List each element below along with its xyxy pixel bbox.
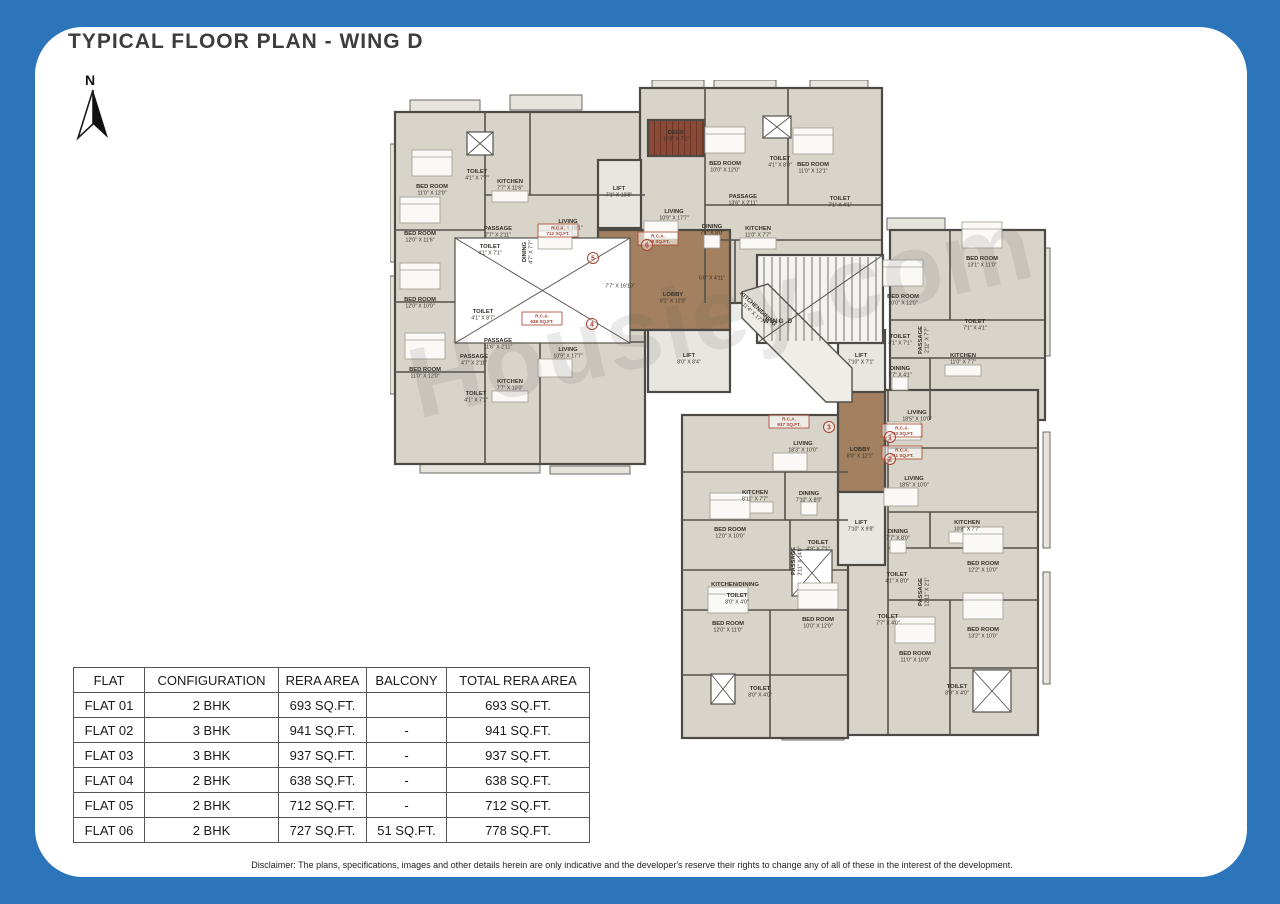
room-label: BED ROOM12'0" X 11'6" [404, 231, 436, 243]
svg-text:4'7" X 2'11": 4'7" X 2'11" [461, 360, 487, 366]
table-row: FLAT 023 BHK941 SQ.FT.-941 SQ.FT. [74, 718, 590, 743]
svg-text:BED ROOM: BED ROOM [966, 256, 998, 262]
room-label: BED ROOM13'1" X 11'0" [966, 256, 998, 268]
svg-text:7'7" X 16'10": 7'7" X 16'10" [605, 283, 634, 289]
room-label: DINING4'7" X 7'7" [522, 240, 534, 264]
svg-text:7'7" X 10'0": 7'7" X 10'0" [497, 385, 524, 391]
table-cell: 638 SQ.FT. [279, 768, 367, 793]
room-label: BED ROOM11'0" X 12'1" [797, 162, 829, 174]
svg-text:TOILET: TOILET [750, 686, 771, 692]
table-header-cell: FLAT [74, 668, 145, 693]
table-cell: 937 SQ.FT. [447, 743, 590, 768]
table-cell: 3 BHK [145, 718, 279, 743]
room-label: PASSAGE13'6" X 2'11" [729, 194, 758, 206]
room-label: TOILET7'7" X 4'0" [876, 614, 900, 626]
svg-text:BED ROOM: BED ROOM [714, 527, 746, 533]
svg-text:R.C.A.: R.C.A. [895, 448, 909, 453]
svg-text:TOILET: TOILET [770, 156, 791, 162]
svg-text:DINING: DINING [890, 366, 911, 372]
svg-text:3: 3 [827, 424, 831, 431]
svg-text:DINING: DINING [522, 241, 528, 262]
svg-text:18'5" X 10'0": 18'5" X 10'0" [902, 416, 931, 422]
table-cell: 693 SQ.FT. [279, 693, 367, 718]
table-cell: 2 BHK [145, 693, 279, 718]
svg-text:TOILET: TOILET [890, 334, 911, 340]
svg-text:LIFT: LIFT [855, 353, 868, 359]
room-label: DINING7'7" X 8'0" [886, 529, 910, 541]
room-label: KITCHEN11'0" X 7'7" [745, 226, 771, 238]
svg-text:4'1" X 7'1": 4'1" X 7'1" [888, 340, 912, 346]
svg-text:DECK: DECK [668, 130, 685, 136]
svg-text:TOILET: TOILET [878, 614, 899, 620]
table-cell: 3 BHK [145, 743, 279, 768]
svg-text:LIVING: LIVING [904, 476, 924, 482]
table-cell: FLAT 04 [74, 768, 145, 793]
svg-text:BED ROOM: BED ROOM [967, 561, 999, 567]
svg-text:TOILET: TOILET [467, 169, 488, 175]
room-label: PASSAGE4'7" X 2'11" [460, 354, 488, 366]
room-label: PASSAGE12'11" X 2'1" [918, 577, 930, 606]
svg-text:11'0" X 7'7": 11'0" X 7'7" [950, 359, 976, 365]
svg-text:4'1" X 8'7": 4'1" X 8'7" [471, 315, 495, 321]
room-label: BED ROOM12'2" X 10'0" [967, 561, 999, 573]
svg-text:18'3" X 10'0": 18'3" X 10'0" [788, 447, 817, 453]
svg-text:18'5" X 10'0": 18'5" X 10'0" [899, 482, 928, 488]
svg-text:TOILET: TOILET [466, 391, 487, 397]
svg-text:712 SQ.FT.: 712 SQ.FT. [546, 231, 569, 236]
svg-text:7'1" X 8'0": 7'1" X 8'0" [700, 230, 724, 236]
svg-text:LOBBY: LOBBY [850, 447, 870, 453]
svg-text:7'7" X 2'11": 7'7" X 2'11" [485, 232, 511, 238]
table-cell: 937 SQ.FT. [279, 743, 367, 768]
room-label: TOILET7'1" X 4'1" [828, 196, 852, 208]
svg-text:5: 5 [591, 255, 595, 262]
svg-text:LIVING: LIVING [664, 209, 684, 215]
table-cell: 2 BHK [145, 818, 279, 843]
disclaimer-text: Disclaimer: The plans, specifications, i… [246, 860, 1018, 870]
svg-text:10'8" X 7'1": 10'8" X 7'1" [663, 136, 690, 142]
room-label: TOILET8'0" X 4'0" [725, 593, 749, 605]
svg-text:11'0" X 12'0": 11'0" X 12'0" [418, 190, 447, 196]
table-cell: - [367, 743, 447, 768]
svg-text:7'7" X 4'1": 7'7" X 4'1" [888, 372, 912, 378]
svg-text:12'11" X 2'1": 12'11" X 2'1" [924, 577, 930, 606]
svg-text:TOILET: TOILET [830, 196, 851, 202]
svg-text:BED ROOM: BED ROOM [797, 162, 829, 168]
room-label: BED ROOM11'0" X 12'0" [409, 367, 441, 379]
svg-text:4'1" X 7'1": 4'1" X 7'1" [464, 397, 488, 403]
table-cell: FLAT 02 [74, 718, 145, 743]
svg-text:11'6" X 2'11": 11'6" X 2'11" [484, 344, 513, 350]
svg-text:TOILET: TOILET [473, 309, 494, 315]
svg-text:BED ROOM: BED ROOM [887, 294, 919, 300]
table-cell: 941 SQ.FT. [279, 718, 367, 743]
svg-text:BED ROOM: BED ROOM [899, 651, 931, 657]
room-label: BED ROOM11'0" X 10'0" [899, 651, 931, 663]
room-label: PASSAGE11'6" X 2'11" [484, 338, 513, 350]
svg-text:4'1" X 8'0": 4'1" X 8'0" [885, 578, 909, 584]
table-cell: - [367, 793, 447, 818]
svg-text:PASSAGE: PASSAGE [918, 326, 924, 354]
svg-text:PASSAGE: PASSAGE [484, 226, 512, 232]
table-cell: FLAT 05 [74, 793, 145, 818]
svg-text:PASSAGE: PASSAGE [729, 194, 757, 200]
table-cell: FLAT 06 [74, 818, 145, 843]
table-header-cell: TOTAL RERA AREA [447, 668, 590, 693]
svg-text:7'7" X 11'6": 7'7" X 11'6" [497, 185, 523, 191]
room-label: TOILET4'1" X 8'7" [471, 309, 495, 321]
room-label: BED ROOM10'0" X 12'0" [709, 161, 741, 173]
svg-text:KITCHEN: KITCHEN [950, 353, 976, 359]
table-header-cell: BALCONY [367, 668, 447, 693]
room-label: KITCHEN/DINING [711, 582, 759, 588]
svg-text:LOBBY: LOBBY [663, 292, 683, 298]
table-row: FLAT 052 BHK712 SQ.FT.-712 SQ.FT. [74, 793, 590, 818]
svg-text:R.C.A.: R.C.A. [535, 314, 549, 319]
svg-text:DINING: DINING [799, 491, 820, 497]
svg-text:R.C.A.: R.C.A. [651, 234, 665, 239]
svg-text:13'2" X 10'0": 13'2" X 10'0" [968, 633, 997, 639]
svg-text:TOILET: TOILET [480, 244, 501, 250]
room-label: TOILET4'1" X 7'1" [464, 391, 488, 403]
table-cell: 727 SQ.FT. [279, 818, 367, 843]
table-cell: - [367, 768, 447, 793]
room-label: BED ROOM10'0" X 12'0" [887, 294, 919, 306]
svg-text:KITCHEN/DINING: KITCHEN/DINING [711, 582, 759, 588]
svg-text:4'1" X 8'0": 4'1" X 8'0" [768, 162, 792, 168]
svg-text:BED ROOM: BED ROOM [404, 231, 436, 237]
svg-text:8'11" X 7'7": 8'11" X 7'7" [742, 496, 768, 502]
room-label: PASSAGE7'7" X 2'11" [484, 226, 512, 238]
svg-text:7'10" X 9'8": 7'10" X 9'8" [848, 526, 875, 532]
room-label: BED ROOM11'0" X 12'0" [416, 184, 448, 196]
svg-text:PASSAGE: PASSAGE [918, 578, 924, 606]
svg-text:LIFT: LIFT [613, 186, 626, 192]
table-row: FLAT 062 BHK727 SQ.FT.51 SQ.FT.778 SQ.FT… [74, 818, 590, 843]
page-title: TYPICAL FLOOR PLAN - WING D [68, 30, 424, 54]
svg-text:7'1" X 4'1": 7'1" X 4'1" [963, 325, 987, 331]
svg-text:KITCHEN: KITCHEN [954, 520, 980, 526]
table-row: FLAT 012 BHK693 SQ.FT.693 SQ.FT. [74, 693, 590, 718]
svg-text:KITCHEN: KITCHEN [497, 379, 523, 385]
svg-text:11'0" X 12'1": 11'0" X 12'1" [799, 168, 828, 174]
svg-text:10'9" X 17'7": 10'9" X 17'7" [659, 215, 688, 221]
room-label: KITCHEN8'11" X 7'7" [742, 490, 768, 502]
svg-text:BED ROOM: BED ROOM [712, 621, 744, 627]
floor-plan-drawing: BED ROOM11'0" X 12'0"TOILET4'1" X 7'7"KI… [390, 80, 1055, 745]
svg-text:PASSAGE: PASSAGE [460, 354, 488, 360]
svg-text:13'6" X 2'11": 13'6" X 2'11" [729, 200, 758, 206]
svg-text:TOILET: TOILET [965, 319, 986, 325]
svg-text:12'0" X 11'0": 12'0" X 11'0" [714, 627, 743, 633]
table-header-cell: CONFIGURATION [145, 668, 279, 693]
svg-text:DINING: DINING [702, 224, 723, 230]
svg-text:13'1" X 11'0": 13'1" X 11'0" [968, 262, 997, 268]
table-header-cell: RERA AREA [279, 668, 367, 693]
north-arrow: N [70, 72, 120, 144]
table-cell: 2 BHK [145, 793, 279, 818]
svg-text:10'0" X 12'0": 10'0" X 12'0" [888, 300, 917, 306]
room-label: LOBBY8'0" X 12'1" [847, 447, 874, 459]
svg-text:12'0" X 10'0": 12'0" X 10'0" [715, 533, 744, 539]
room-label: BED ROOM13'2" X 10'0" [967, 627, 999, 639]
svg-text:10'0" X 12'0": 10'0" X 12'0" [710, 167, 739, 173]
svg-text:DINING: DINING [888, 529, 909, 535]
svg-text:12'2" X 10'0": 12'2" X 10'0" [968, 567, 997, 573]
svg-text:BED ROOM: BED ROOM [967, 627, 999, 633]
room-label: TOILET7'1" X 4'1" [963, 319, 987, 331]
svg-text:8'0" X 12'1": 8'0" X 12'1" [847, 453, 874, 459]
svg-text:11'0" X 10'0": 11'0" X 10'0" [901, 657, 930, 663]
svg-text:TOILET: TOILET [727, 593, 748, 599]
table-cell: 693 SQ.FT. [447, 693, 590, 718]
svg-text:4'1" X 7'1": 4'1" X 7'1" [478, 250, 502, 256]
room-label: TOILET4'1" X 8'0" [885, 572, 909, 584]
svg-text:10'8" X 7'7": 10'8" X 7'7" [954, 526, 981, 532]
svg-text:PASSAGE: PASSAGE [484, 338, 512, 344]
svg-text:2'11" X 7'7": 2'11" X 7'7" [924, 327, 930, 353]
table-cell: 638 SQ.FT. [447, 768, 590, 793]
svg-text:TOILET: TOILET [808, 540, 829, 546]
svg-text:BED ROOM: BED ROOM [409, 367, 441, 373]
svg-text:KITCHEN: KITCHEN [745, 226, 771, 232]
svg-text:7'7" X 8'0": 7'7" X 8'0" [886, 535, 910, 541]
room-label: TOILET4'1" X 8'0" [768, 156, 792, 168]
table-cell: FLAT 03 [74, 743, 145, 768]
svg-text:LIFT: LIFT [683, 353, 696, 359]
room-label: TOILET8'0" X 4'0" [945, 684, 969, 696]
room-label: TOILET4'1" X 7'7" [465, 169, 489, 181]
svg-text:LIVING: LIVING [793, 441, 813, 447]
north-label: N [85, 72, 95, 88]
table-cell: 941 SQ.FT. [447, 718, 590, 743]
table-cell: 712 SQ.FT. [279, 793, 367, 818]
room-label: DINING7'1" X 8'0" [700, 224, 724, 236]
page: { "page": { "title": "TYPICAL FLOOR PLAN… [0, 0, 1280, 904]
room-label: BED ROOM12'0" X 11'0" [712, 621, 744, 633]
room-label: PASSAGE2'11" X 7'7" [918, 326, 930, 354]
table-row: FLAT 042 BHK638 SQ.FT.-638 SQ.FT. [74, 768, 590, 793]
flat-area-table: FLATCONFIGURATIONRERA AREABALCONYTOTAL R… [73, 667, 590, 843]
room-label: KITCHEN11'0" X 7'7" [950, 353, 976, 365]
room-label: TOILET4'1" X 7'1" [888, 334, 912, 346]
room-label: DINING7'7" X 4'1" [888, 366, 912, 378]
svg-text:1: 1 [888, 434, 892, 441]
room-label: KITCHEN10'8" X 7'7" [954, 520, 981, 532]
svg-text:R.C.A.: R.C.A. [895, 426, 909, 431]
table-cell: 778 SQ.FT. [447, 818, 590, 843]
svg-text:BED ROOM: BED ROOM [709, 161, 741, 167]
table-cell [367, 693, 447, 718]
svg-text:2'11" X 14'0": 2'11" X 14'0" [797, 546, 803, 575]
svg-text:PASSAGE: PASSAGE [791, 547, 797, 575]
svg-text:KITCHEN: KITCHEN [742, 490, 768, 496]
table-cell: 51 SQ.FT. [367, 818, 447, 843]
svg-text:9'1" X 12'0": 9'1" X 12'0" [660, 298, 687, 304]
svg-text:TOILET: TOILET [887, 572, 908, 578]
svg-text:4'9" X 7'1": 4'9" X 7'1" [806, 546, 830, 552]
table-cell: FLAT 01 [74, 693, 145, 718]
svg-text:11'0" X 12'0": 11'0" X 12'0" [411, 373, 440, 379]
room-label: BED ROOM10'0" X 12'0" [802, 617, 834, 629]
svg-text:8'0" X 8'4": 8'0" X 8'4" [677, 359, 701, 365]
table-header-row: FLATCONFIGURATIONRERA AREABALCONYTOTAL R… [74, 668, 590, 693]
table-cell: 2 BHK [145, 768, 279, 793]
svg-text:12'0" X 11'6": 12'0" X 11'6" [406, 237, 435, 243]
svg-text:BED ROOM: BED ROOM [404, 297, 436, 303]
room-label: BED ROOM12'0" X 10'0" [404, 297, 436, 309]
svg-text:BED ROOM: BED ROOM [416, 184, 448, 190]
svg-text:5'8" X 4'11": 5'8" X 4'11" [699, 275, 725, 281]
svg-text:7'1" X 10'8": 7'1" X 10'8" [606, 192, 633, 198]
svg-text:KITCHEN: KITCHEN [497, 179, 523, 185]
svg-text:10'0" X 12'0": 10'0" X 12'0" [803, 623, 832, 629]
room-label: 7'7" X 16'10" [605, 283, 634, 289]
svg-text:8'0" X 4'0": 8'0" X 4'0" [748, 692, 772, 698]
svg-text:BED ROOM: BED ROOM [802, 617, 834, 623]
room-label: KITCHEN7'7" X 10'0" [497, 379, 524, 391]
svg-text:R.C.A.: R.C.A. [782, 417, 796, 422]
svg-text:4'1" X 7'7": 4'1" X 7'7" [465, 175, 489, 181]
svg-text:7'10" X 7'1": 7'10" X 7'1" [848, 359, 875, 365]
svg-text:11'0" X 7'7": 11'0" X 7'7" [745, 232, 771, 238]
room-label: KITCHEN7'7" X 11'6" [497, 179, 523, 191]
svg-text:R.C.A.: R.C.A. [551, 226, 565, 231]
svg-text:7'10" X 8'0": 7'10" X 8'0" [796, 497, 823, 503]
svg-text:12'0" X 10'0": 12'0" X 10'0" [405, 303, 434, 309]
table-cell: 712 SQ.FT. [447, 793, 590, 818]
svg-text:4: 4 [590, 321, 594, 328]
room-label: PASSAGE2'11" X 14'0" [791, 546, 803, 575]
svg-text:7'1" X 4'1": 7'1" X 4'1" [828, 202, 852, 208]
room-label: TOILET8'0" X 4'0" [748, 686, 772, 698]
room-label: 5'8" X 4'11" [699, 275, 725, 281]
svg-text:8'0" X 4'0": 8'0" X 4'0" [945, 690, 969, 696]
room-label: TOILET4'1" X 7'1" [478, 244, 502, 256]
table-cell: - [367, 718, 447, 743]
svg-text:638 SQ.FT.: 638 SQ.FT. [530, 319, 553, 324]
svg-text:6: 6 [645, 242, 649, 249]
svg-text:937 SQ.FT.: 937 SQ.FT. [777, 422, 800, 427]
room-label: TOILET4'9" X 7'1" [806, 540, 830, 552]
svg-text:4'7" X 7'7": 4'7" X 7'7" [528, 240, 534, 264]
svg-text:LIVING: LIVING [907, 410, 927, 416]
room-label: BED ROOM12'0" X 10'0" [714, 527, 746, 539]
svg-text:10'9" X 17'7": 10'9" X 17'7" [553, 353, 582, 359]
svg-text:LIFT: LIFT [855, 520, 868, 526]
svg-text:LIVING: LIVING [558, 347, 578, 353]
svg-text:8'0" X 4'0": 8'0" X 4'0" [725, 599, 749, 605]
svg-text:TOILET: TOILET [947, 684, 968, 690]
table-row: FLAT 033 BHK937 SQ.FT.-937 SQ.FT. [74, 743, 590, 768]
room-label: DINING7'10" X 8'0" [796, 491, 823, 503]
svg-text:7'7" X 4'0": 7'7" X 4'0" [876, 620, 900, 626]
room-label: LOBBY9'1" X 12'0" [660, 292, 687, 304]
svg-text:2: 2 [888, 456, 892, 463]
floor-plan: BED ROOM11'0" X 12'0"TOILET4'1" X 7'7"KI… [390, 80, 1055, 745]
